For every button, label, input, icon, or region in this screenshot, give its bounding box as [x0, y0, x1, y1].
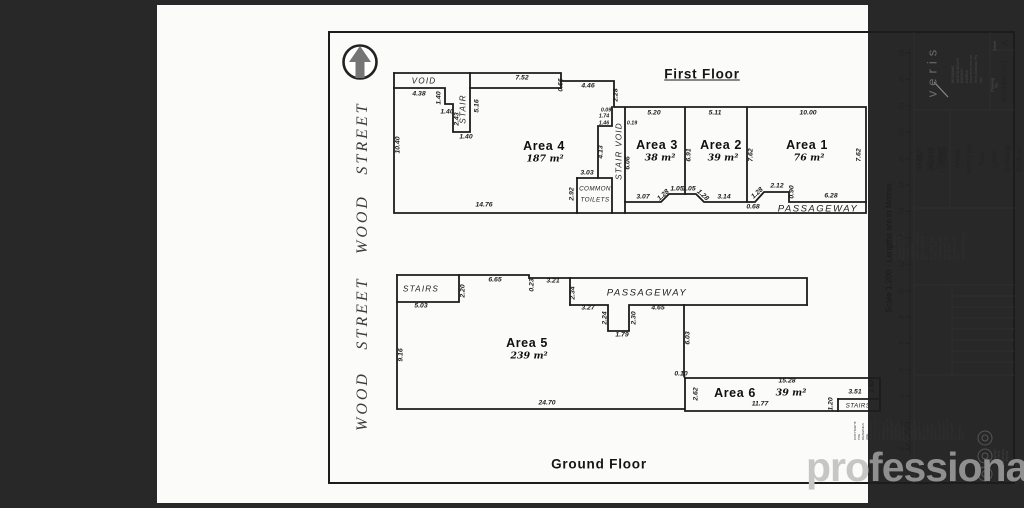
- dim-label: 4.38: [412, 92, 425, 99]
- dim-label: 0.68: [746, 205, 759, 212]
- scale-tick-label: 28: [899, 49, 906, 56]
- dim-label: 6.65: [488, 278, 501, 285]
- zone-label: TOILETS: [581, 197, 610, 204]
- dim-label: 1.40: [440, 110, 453, 117]
- ground-floor-title: Ground Floor: [551, 457, 647, 472]
- professionals-watermark: professionals: [806, 444, 1024, 491]
- scale-tick-label: 4: [899, 368, 906, 372]
- dim-label: 6.06: [626, 156, 633, 169]
- scale-tick-label: 8: [899, 315, 906, 319]
- dim-label: 2.28: [614, 88, 621, 101]
- dim-label: 6.91: [687, 148, 694, 161]
- dim-label: 24.70: [538, 401, 555, 408]
- dim-label: 5.16: [475, 99, 482, 112]
- dim-label: 3.03: [580, 171, 593, 178]
- zone-label: STAIRS: [846, 403, 871, 410]
- dim-label: 5.20: [647, 111, 660, 118]
- room-label: Area 6: [714, 386, 756, 400]
- zone-label: PASSAGEWAY: [607, 288, 687, 299]
- dim-label: 2.24: [603, 311, 610, 324]
- dim-label: 0.23: [530, 278, 537, 291]
- image-viewer-canvas: VOID7.520.664.462.284.381.401.402.431.40…: [0, 0, 1024, 503]
- dim-label: 2.20: [461, 284, 468, 297]
- scale-tick-label: 26: [899, 76, 906, 83]
- scale-tick-label: 24: [899, 102, 906, 109]
- zone-label: COMMON: [579, 186, 611, 193]
- dim-label: 39 m²: [776, 388, 807, 399]
- dim-label: 3.27: [581, 306, 594, 313]
- dim-label: 3.21: [546, 279, 559, 286]
- dim-label: 76 m²: [794, 153, 825, 164]
- plan-description: Sketch Plan of Lettable Areas within the…: [913, 141, 1024, 176]
- scale-tick-label: 2: [899, 394, 906, 398]
- room-label: Area 3: [636, 138, 678, 152]
- dim-label: 1.46: [599, 121, 609, 126]
- scale-tick-label: 22: [899, 129, 906, 136]
- dim-label: 10.00: [799, 111, 816, 118]
- dim-label: 6.28: [824, 194, 837, 201]
- watermark-light-part: pro: [806, 444, 869, 490]
- street-label: STREET: [354, 276, 372, 349]
- street-label: STREET: [354, 101, 372, 174]
- scale-tick-label: 20: [899, 155, 906, 162]
- zone-label: STAIR VOID: [615, 122, 624, 180]
- zone-label: VOID: [412, 77, 437, 86]
- dim-label: 2.30: [632, 311, 639, 324]
- street-label: WOOD: [354, 371, 372, 431]
- dim-label: 4.65: [651, 306, 664, 313]
- street-label: WOOD: [354, 194, 372, 254]
- dim-label: 14.76: [475, 203, 492, 210]
- plan-metadata-fields: Locality: Mackay Local Authority: Mackay…: [892, 232, 966, 260]
- dim-label: 5.11: [709, 111, 722, 118]
- drawing-no-label: Drawing No: [991, 78, 1000, 92]
- dim-label: 0.66: [559, 78, 566, 91]
- dim-label: 0.19: [627, 121, 637, 126]
- scale-tick-label: 10: [899, 287, 906, 294]
- watermark-dark-part: fessionals: [869, 444, 1024, 490]
- first-floor-title: First Floor: [664, 67, 740, 82]
- dim-label: 1.79: [615, 333, 628, 340]
- zone-label: STAIRS: [403, 285, 439, 294]
- dim-label: 39 m²: [708, 153, 739, 164]
- dim-label: 4.13: [599, 145, 606, 158]
- zone-label: STAIR: [459, 94, 468, 124]
- sheet-label: Sheet: [993, 41, 997, 51]
- dim-label: 3.51: [848, 390, 861, 397]
- dim-label: 2.92: [570, 187, 577, 200]
- dim-label: 2.62: [694, 387, 701, 400]
- dim-label: 1.40: [437, 91, 444, 104]
- room-label: Area 4: [523, 139, 565, 153]
- dim-label: 2.34: [571, 286, 578, 299]
- scale-tick-label: 6: [899, 342, 906, 346]
- dim-label: 4.46: [581, 84, 594, 91]
- dim-label: 1.74: [599, 114, 609, 119]
- dim-label: 5.03: [414, 304, 427, 311]
- scale-tick-label: 12: [899, 261, 906, 268]
- sheet-value: A: [1000, 40, 1009, 45]
- scale-tick-label: 16: [899, 208, 906, 215]
- room-label: Area 1: [786, 138, 828, 152]
- dim-label: 3.07: [636, 195, 649, 202]
- dim-label: 2.12: [770, 184, 783, 191]
- room-label: Area 5: [506, 336, 548, 350]
- dim-label: 239 m²: [510, 351, 547, 362]
- dim-label: 11.77: [752, 402, 769, 409]
- dim-label: 7.62: [857, 148, 864, 161]
- important-note: IMPORTANT - Lot 1(b): this plan was prep…: [882, 423, 962, 441]
- scanned-plan-page: VOID7.520.664.462.284.381.401.402.431.40…: [157, 5, 868, 503]
- dim-label: 1.62: [870, 379, 877, 392]
- surveyor-contact-block: BRISBANE WHITSUNDAYS MACKAY CAIRNS www.v…: [951, 55, 983, 83]
- dim-label: 10.40: [396, 136, 403, 153]
- north-arrow-icon: [344, 46, 377, 79]
- scale-tick-label: 18: [899, 181, 906, 188]
- dim-label: 15.28: [778, 379, 795, 386]
- drawing-no-value: 400188LS01: [1001, 60, 1010, 103]
- dim-label: 187 m²: [526, 154, 563, 165]
- room-label: Area 2: [700, 138, 742, 152]
- dim-label: 1.20: [829, 397, 836, 410]
- dim-label: 38 m²: [645, 153, 676, 164]
- dim-label: 0.10: [674, 372, 687, 379]
- dim-label: 9.16: [399, 348, 406, 361]
- dim-label: 1.40: [459, 135, 472, 142]
- dim-label: 7.52: [515, 76, 528, 83]
- veris-logo: veris: [926, 45, 941, 97]
- dim-label: 3.14: [717, 195, 730, 202]
- zone-label: PASSAGEWAY: [778, 204, 858, 215]
- dim-label: 0.90: [790, 185, 797, 198]
- dim-label: 1.05: [682, 187, 695, 194]
- dim-label: 6.03: [686, 331, 693, 344]
- dim-label: 7.62: [749, 148, 756, 161]
